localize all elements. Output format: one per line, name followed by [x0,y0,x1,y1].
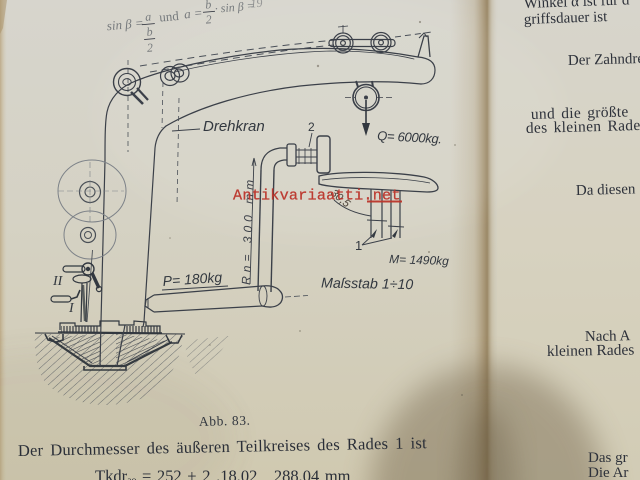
svg-text:Tkdrₐₒ = 252 + 2 .18,02 288,0: Tkdrₐₒ = 252 + 2 .18,02 288,04 mm [95,467,351,480]
svg-text:Da diesen: Da diesen [576,181,636,199]
svg-text:kleinen Rades: kleinen Rades [547,341,635,360]
svg-text:Abb. 83.: Abb. 83. [199,413,251,429]
svg-text:II: II [52,274,64,289]
svg-text:sin β =: sin β = [106,15,144,33]
svg-text:Maſsstab 1÷10: Maſsstab 1÷10 [321,276,414,294]
svg-text:19: 19 [250,0,263,11]
svg-text:2: 2 [308,120,315,134]
svg-text:1: 1 [355,238,362,253]
svg-text:2: 2 [205,12,212,26]
svg-text:2: 2 [146,40,153,54]
svg-text:a =: a = [183,5,203,22]
svg-text:griffsdauer ist: griffsdauer ist [524,9,609,28]
svg-text:b: b [205,0,212,12]
svg-text:des kleinen Rade: des kleinen Rade [526,117,640,137]
svg-text:b: b [146,24,153,38]
svg-text:und: und [159,8,180,25]
svg-text:a: a [145,9,152,23]
svg-text:Drehkran: Drehkran [203,118,265,135]
svg-text:Das gr: Das gr [588,450,628,466]
svg-text:M= 1490kg: M= 1490kg [389,252,449,268]
svg-text:Die Ar: Die Ar [588,465,628,480]
svg-text:Der Zahndre: Der Zahndre [568,51,640,69]
